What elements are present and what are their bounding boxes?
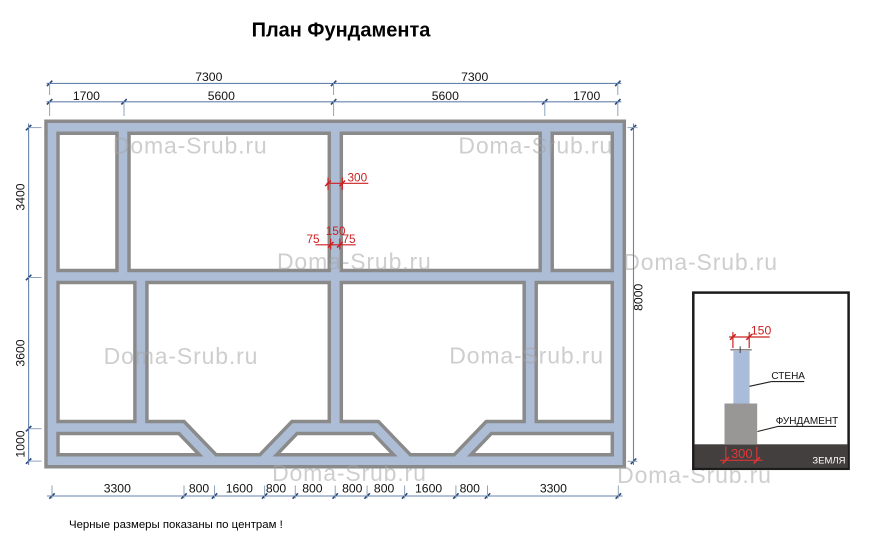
svg-text:1700: 1700 (573, 89, 600, 103)
svg-text:800: 800 (266, 482, 287, 496)
svg-text:Черные размеры показаны по цен: Черные размеры показаны по центрам ! (69, 519, 283, 531)
svg-text:5600: 5600 (208, 89, 235, 103)
svg-text:800: 800 (302, 482, 323, 496)
svg-text:7300: 7300 (461, 70, 488, 84)
svg-text:3600: 3600 (14, 339, 28, 366)
svg-text:Doma-Srub.ru: Doma-Srub.ru (458, 132, 613, 158)
svg-text:1700: 1700 (73, 89, 100, 103)
svg-text:800: 800 (342, 482, 363, 496)
svg-text:ФУНДАМЕНТ: ФУНДАМЕНТ (776, 416, 839, 427)
svg-text:300: 300 (348, 171, 368, 185)
svg-text:Doma-Srub.ru: Doma-Srub.ru (113, 133, 268, 159)
svg-text:800: 800 (189, 482, 210, 496)
svg-text:3300: 3300 (104, 482, 131, 496)
svg-text:8000: 8000 (632, 284, 646, 311)
svg-text:Doma-Srub.ru: Doma-Srub.ru (449, 343, 604, 369)
svg-text:План Фундамента: План Фундамента (252, 19, 432, 41)
svg-text:СТЕНА: СТЕНА (771, 371, 805, 382)
svg-text:3300: 3300 (540, 482, 567, 496)
svg-text:ЗЕМЛЯ: ЗЕМЛЯ (812, 456, 845, 467)
svg-text:800: 800 (374, 482, 395, 496)
svg-text:1000: 1000 (14, 430, 28, 457)
svg-text:1600: 1600 (226, 482, 253, 496)
svg-text:Doma-Srub.ru: Doma-Srub.ru (623, 249, 778, 275)
svg-text:800: 800 (460, 482, 481, 496)
svg-text:3400: 3400 (14, 183, 28, 210)
svg-text:75: 75 (342, 232, 356, 246)
svg-text:Doma-Srub.ru: Doma-Srub.ru (104, 343, 259, 369)
svg-text:300: 300 (731, 446, 753, 461)
svg-text:7300: 7300 (195, 70, 222, 84)
svg-text:1600: 1600 (415, 482, 442, 496)
svg-text:75: 75 (306, 232, 320, 246)
svg-text:Doma-Srub.ru: Doma-Srub.ru (277, 249, 432, 275)
svg-text:5600: 5600 (432, 89, 459, 103)
svg-text:150: 150 (751, 324, 772, 338)
